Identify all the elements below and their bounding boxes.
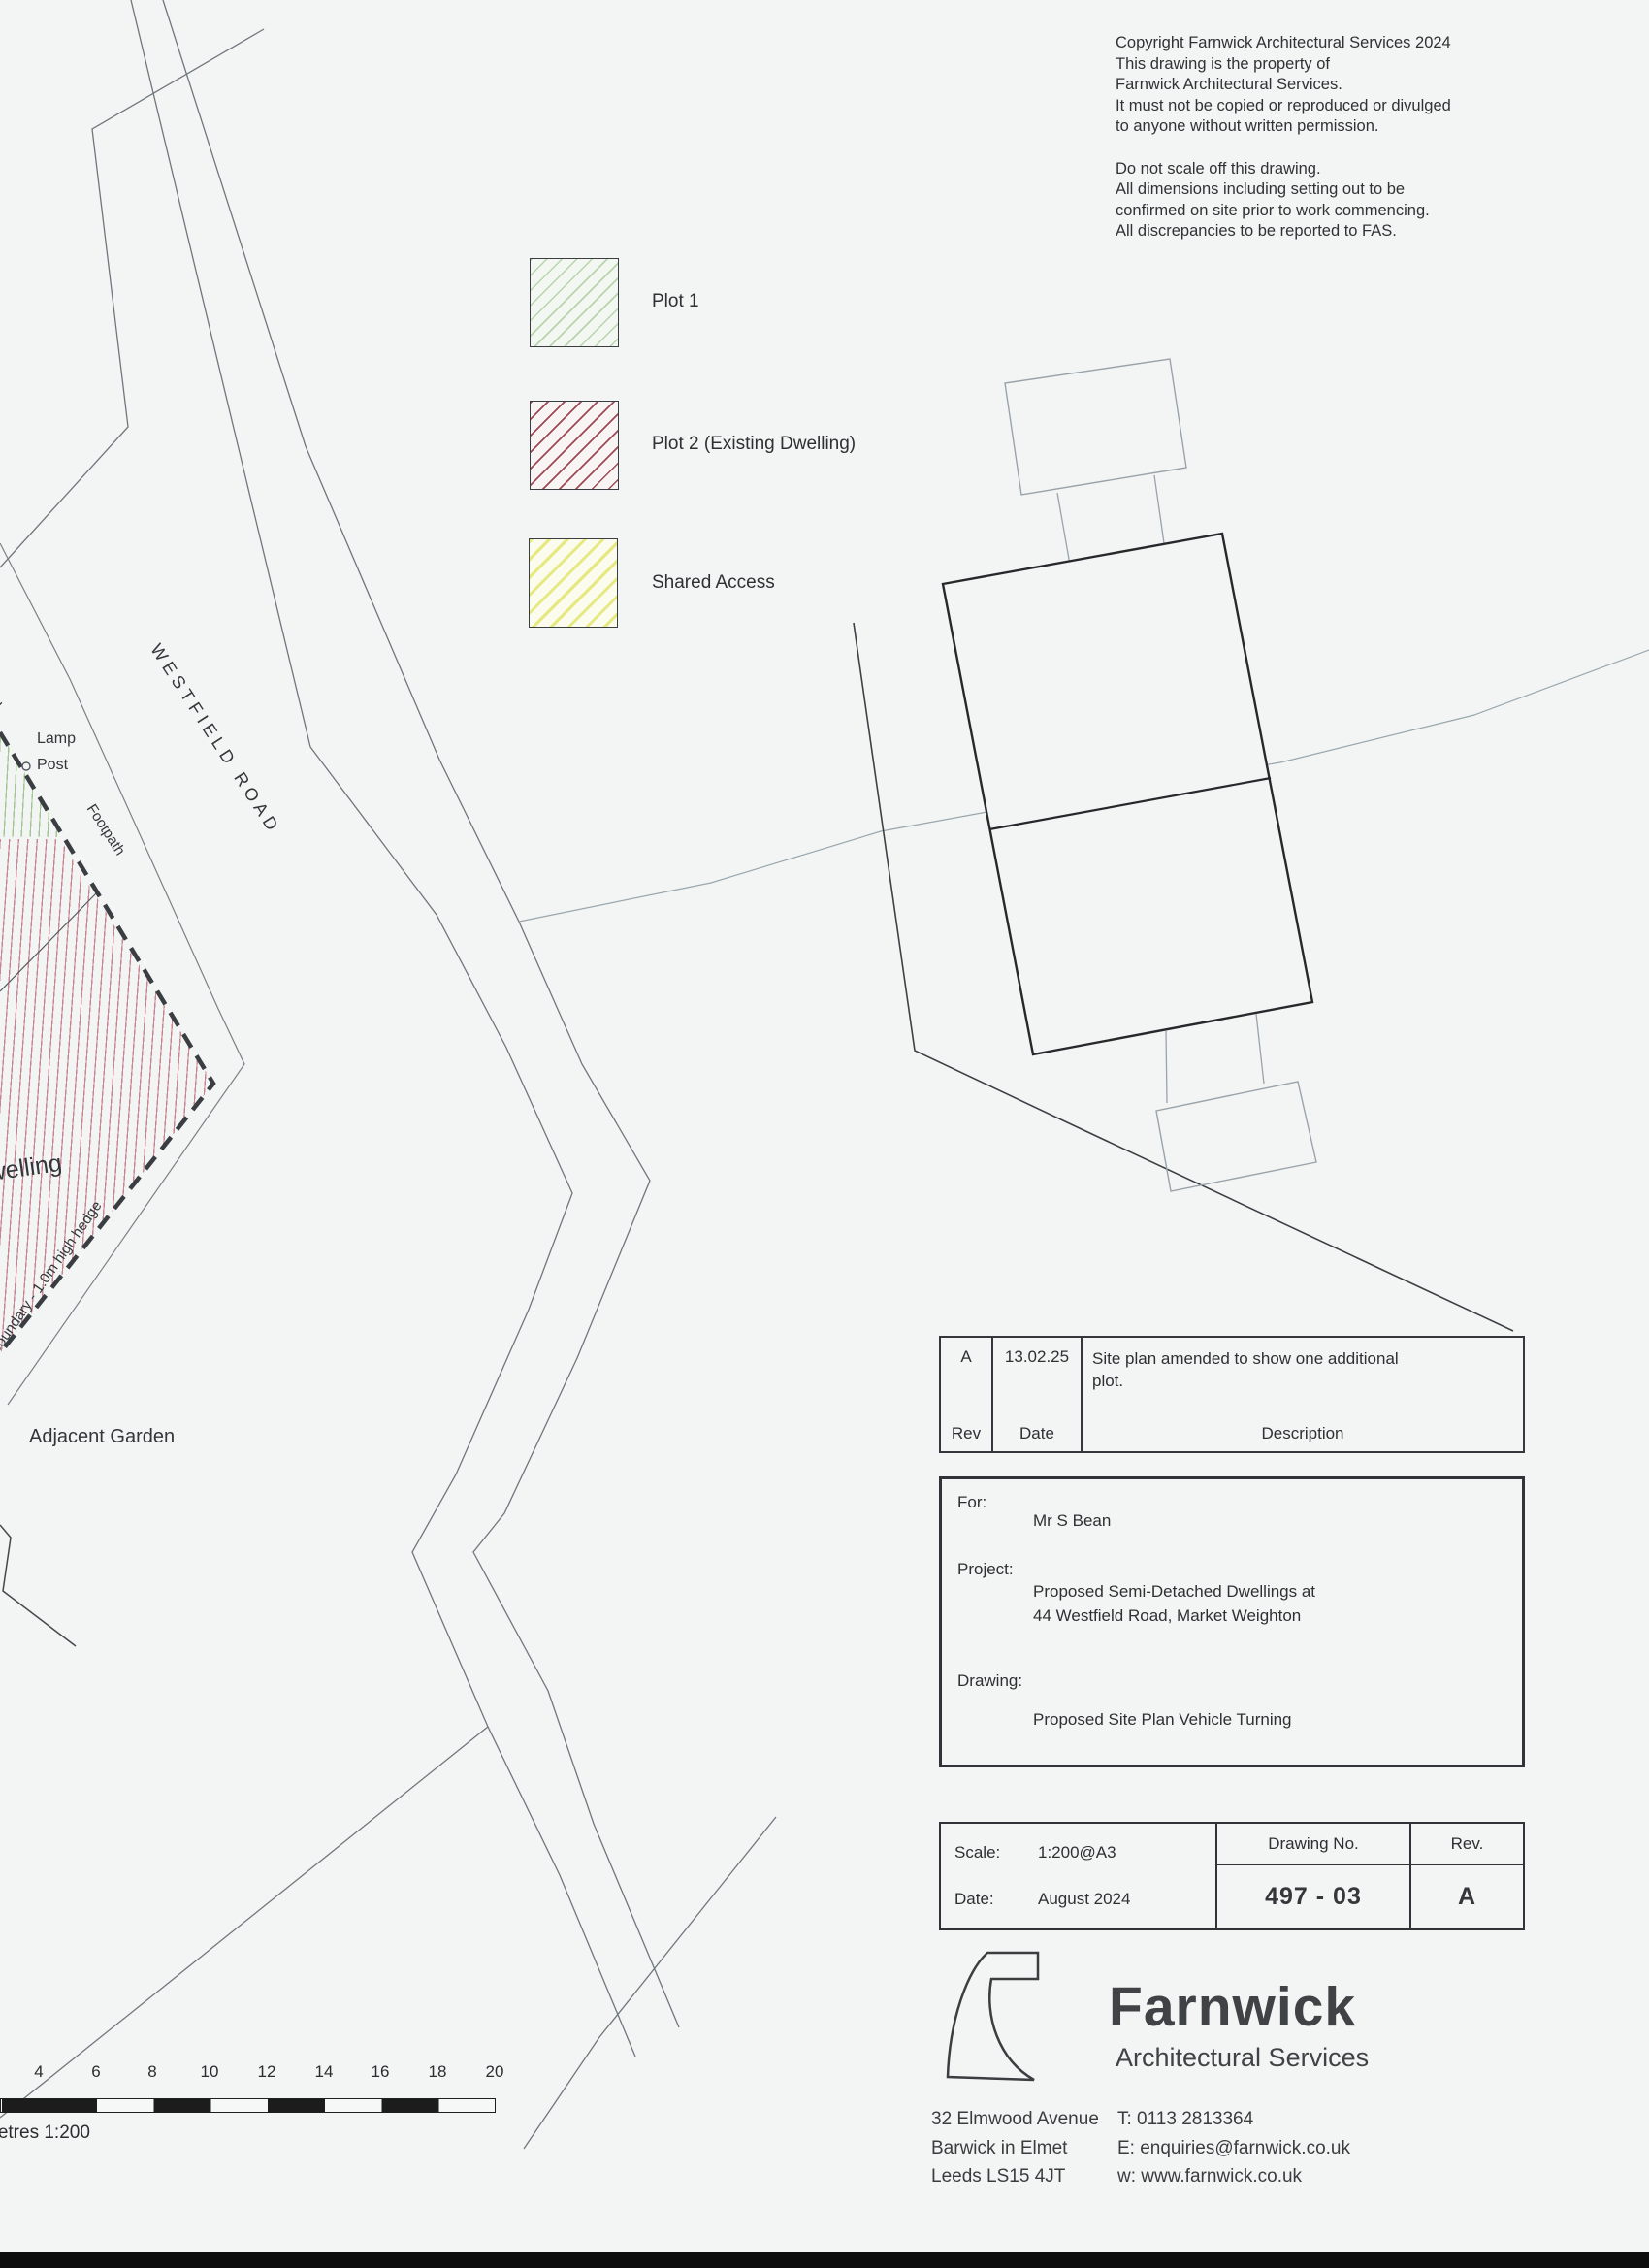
project-line2: 44 Westfield Road, Market Weighton — [1033, 1606, 1301, 1626]
scalebar-tick: 18 — [421, 2062, 454, 2082]
scan-edge-strip — [0, 2252, 1649, 2268]
drawing-no-label: Drawing No. — [1217, 1824, 1409, 1865]
revision-col-date: 13.02.25 Date — [991, 1338, 1081, 1451]
title-block: For: Mr S Bean Project: Proposed Semi-De… — [939, 1476, 1525, 1767]
scalebar-tick: 12 — [250, 2062, 283, 2082]
lamp-post-label: Lamp Post — [37, 726, 76, 778]
scale-bar-caption: Metres 1:200 — [0, 2122, 90, 2144]
rev-value: A — [1411, 1865, 1523, 1928]
date-value: August 2024 — [1038, 1890, 1130, 1909]
legend-swatch-shared-access — [529, 538, 618, 628]
legend-swatch-plot1 — [530, 258, 619, 347]
revision-header-description: Description — [1261, 1424, 1343, 1443]
scale-value: 1:200@A3 — [1038, 1843, 1116, 1863]
rev-cell: Rev. A — [1409, 1824, 1523, 1928]
drawing-no-cell: Drawing No. 497 - 03 — [1215, 1824, 1409, 1928]
date-label: Date: — [941, 1890, 1038, 1909]
project-line1: Proposed Semi-Detached Dwellings at — [1033, 1582, 1315, 1602]
adjacent-garden-label: Adjacent Garden — [29, 1426, 175, 1448]
scale-label: Scale: — [941, 1843, 1038, 1863]
revision-value: A — [960, 1347, 971, 1367]
scalebar-tick: 16 — [364, 2062, 397, 2082]
for-label: For: — [957, 1493, 986, 1512]
scalebar-tick: 8 — [136, 2062, 169, 2082]
brand-address: 32 Elmwood Avenue Barwick in Elmet Leeds… — [931, 2105, 1099, 2191]
farnwick-logo-icon — [948, 1953, 1038, 2080]
legend-label-shared-access: Shared Access — [652, 572, 775, 594]
drawing-label: Drawing: — [957, 1671, 1022, 1691]
scale-date-cell: Scale: 1:200@A3 Date: August 2024 — [941, 1824, 1215, 1928]
legend-swatch-plot2 — [530, 401, 619, 490]
client-name: Mr S Bean — [1033, 1511, 1111, 1531]
lamp-post-marker — [22, 762, 30, 770]
drawing-title: Proposed Site Plan Vehicle Turning — [1033, 1710, 1292, 1730]
scalebar-tick: 14 — [307, 2062, 340, 2082]
brand-tagline: Architectural Services — [1115, 2043, 1369, 2073]
scalebar-tick: 6 — [80, 2062, 113, 2082]
revision-header-date: Date — [1019, 1424, 1054, 1443]
scale-bar — [0, 2098, 496, 2113]
legend-label-plot2: Plot 2 (Existing Dwelling) — [652, 434, 856, 455]
revision-table: A Rev 13.02.25 Date Site plan amended to… — [939, 1336, 1525, 1453]
revision-header-rev: Rev — [952, 1424, 981, 1443]
revision-col-description: Site plan amended to show one additional… — [1081, 1338, 1523, 1451]
copyright-notes: Copyright Farnwick Architectural Service… — [1115, 33, 1451, 243]
revision-col-rev: A Rev — [941, 1338, 991, 1451]
drawing-no-value: 497 - 03 — [1217, 1865, 1409, 1928]
drawing-info-table: Scale: 1:200@A3 Date: August 2024 Drawin… — [939, 1822, 1525, 1930]
scalebar-tick: 20 — [478, 2062, 511, 2082]
revision-date-value: 13.02.25 — [1005, 1347, 1069, 1367]
vehicle-outline-top — [1005, 359, 1186, 495]
scalebar-tick: 10 — [193, 2062, 226, 2082]
scalebar-tick: 4 — [22, 2062, 55, 2082]
brand-contact: T: 0113 2813364 E: enquiries@farnwick.co… — [1117, 2105, 1350, 2191]
revision-description-value: Site plan amended to show one additional… — [1092, 1347, 1412, 1392]
brand-name: Farnwick — [1109, 1975, 1356, 2039]
rev-label: Rev. — [1411, 1824, 1523, 1865]
project-label: Project: — [957, 1560, 1014, 1579]
site-plan-page: WESTFIELD ROAD Footpath wall Lamp Post D… — [0, 0, 1649, 2268]
proposed-dwellings-outline — [943, 534, 1312, 1054]
legend-label-plot1: Plot 1 — [652, 291, 699, 312]
